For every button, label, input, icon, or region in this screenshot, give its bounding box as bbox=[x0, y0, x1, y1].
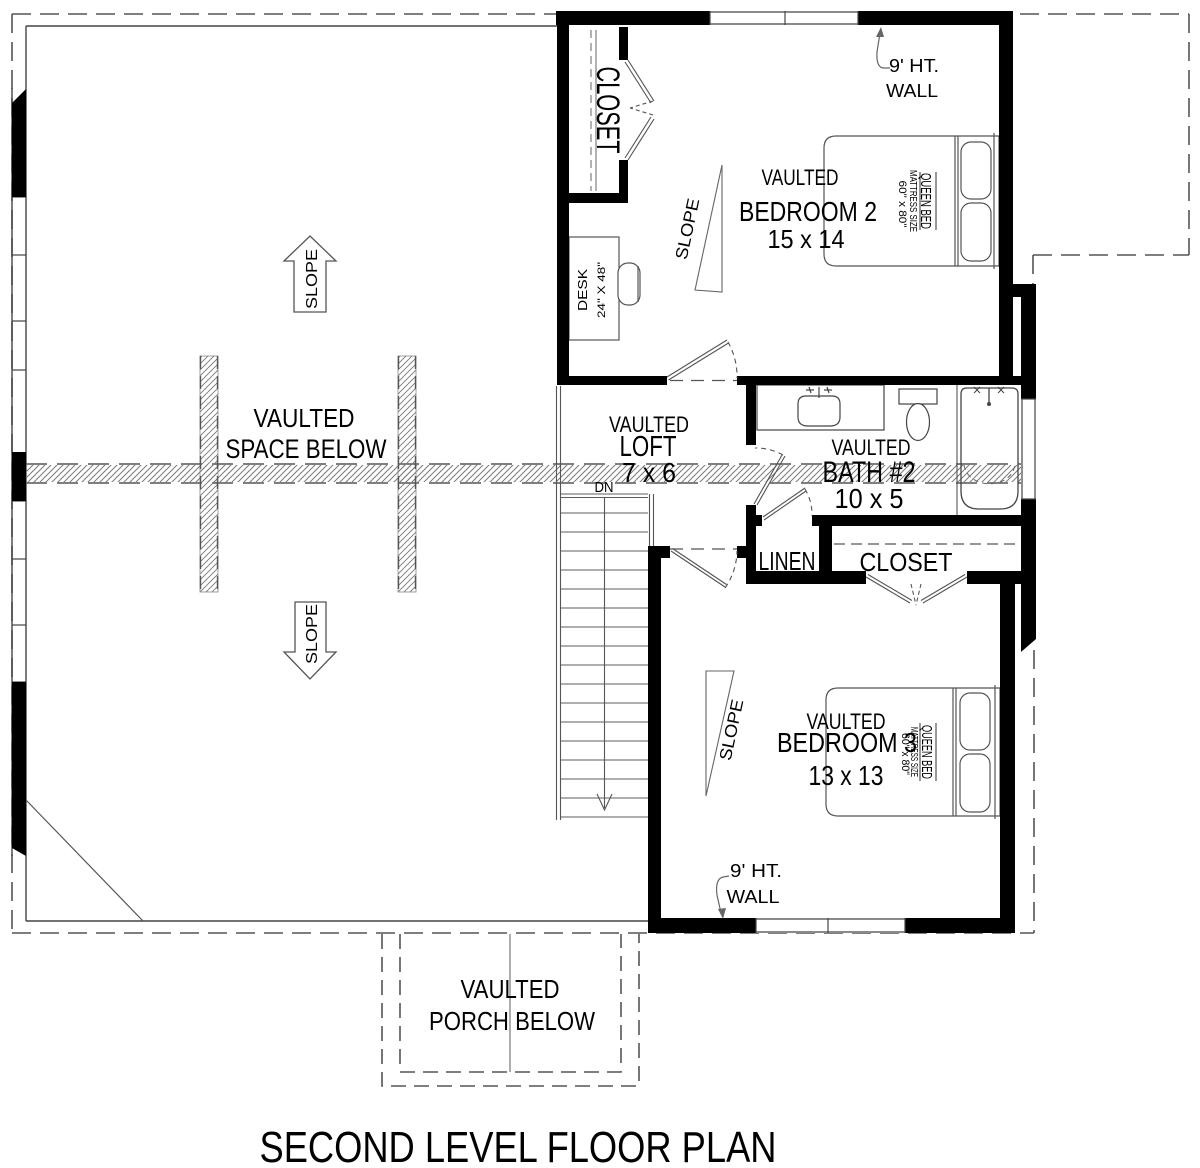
svg-text:60" x 80": 60" x 80" bbox=[896, 181, 908, 228]
svg-text:CLOSET: CLOSET bbox=[590, 67, 626, 154]
svg-text:DESK: DESK bbox=[575, 269, 590, 311]
svg-text:13 x 13: 13 x 13 bbox=[809, 760, 884, 791]
svg-text:DN: DN bbox=[595, 479, 614, 496]
svg-text:10 x 5: 10 x 5 bbox=[835, 483, 904, 514]
svg-text:WALL: WALL bbox=[886, 81, 938, 101]
svg-text:SPACE BELOW: SPACE BELOW bbox=[226, 434, 387, 464]
svg-text:24" X 48": 24" X 48" bbox=[596, 262, 608, 318]
svg-text:VAULTED: VAULTED bbox=[461, 974, 560, 1004]
svg-text:LINEN: LINEN bbox=[759, 546, 816, 576]
svg-text:CLOSET: CLOSET bbox=[860, 547, 953, 577]
svg-text:QUEEN BED: QUEEN BED bbox=[917, 173, 934, 229]
svg-text:SECOND LEVEL FLOOR PLAN: SECOND LEVEL FLOOR PLAN bbox=[260, 1123, 777, 1168]
svg-text:BEDROOM 3: BEDROOM 3 bbox=[777, 727, 917, 758]
svg-text:SLOPE: SLOPE bbox=[304, 249, 321, 309]
svg-text:VAULTED: VAULTED bbox=[762, 165, 839, 190]
svg-text:9' HT.: 9' HT. bbox=[730, 861, 782, 881]
svg-text:BEDROOM 2: BEDROOM 2 bbox=[739, 196, 877, 227]
svg-text:60" x 80": 60" x 80" bbox=[899, 733, 911, 775]
svg-text:QUEEN BED: QUEEN BED bbox=[918, 725, 935, 779]
svg-text:7 x 6: 7 x 6 bbox=[622, 457, 676, 488]
svg-text:15 x 14: 15 x 14 bbox=[768, 224, 845, 254]
svg-text:SLOPE: SLOPE bbox=[304, 604, 321, 664]
svg-text:9' HT.: 9' HT. bbox=[889, 56, 939, 76]
svg-text:PORCH BELOW: PORCH BELOW bbox=[429, 1006, 595, 1036]
svg-text:VAULTED: VAULTED bbox=[254, 403, 355, 433]
svg-text:WALL: WALL bbox=[727, 887, 780, 907]
